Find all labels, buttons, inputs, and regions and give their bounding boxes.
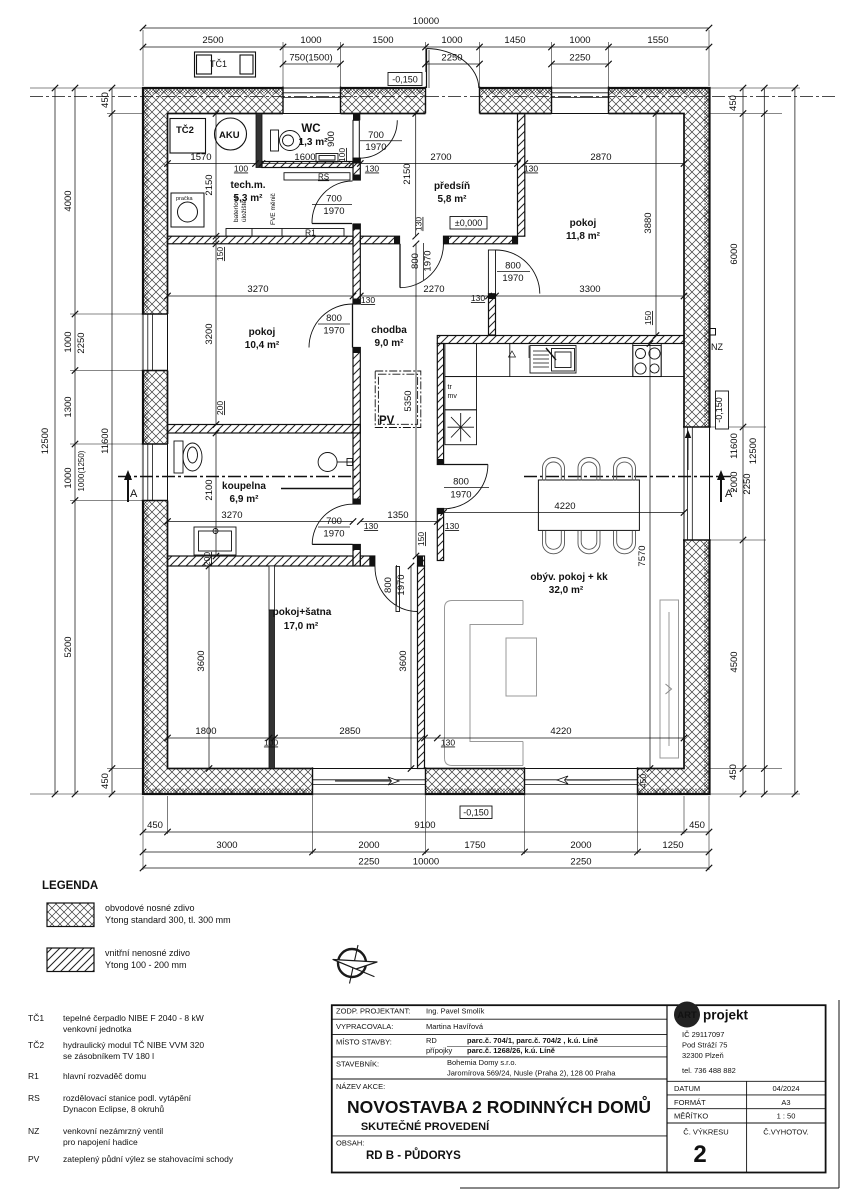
- svg-text:tech.m.: tech.m.: [230, 180, 265, 191]
- svg-text:FORMÁT: FORMÁT: [674, 1098, 706, 1107]
- svg-text:3300: 3300: [579, 284, 600, 295]
- svg-text:MĚŘÍTKO: MĚŘÍTKO: [674, 1112, 708, 1121]
- svg-text:1970: 1970: [423, 250, 434, 271]
- svg-text:RD: RD: [426, 1036, 437, 1045]
- svg-text:1000: 1000: [441, 35, 462, 46]
- svg-text:A3: A3: [781, 1098, 790, 1107]
- svg-text:6000: 6000: [729, 243, 740, 264]
- svg-text:2700: 2700: [430, 152, 451, 163]
- svg-text:11600: 11600: [100, 428, 111, 454]
- svg-text:1970: 1970: [323, 326, 344, 337]
- svg-text:TČ1: TČ1: [28, 1013, 44, 1023]
- svg-text:Bohemia Domy s.r.o.: Bohemia Domy s.r.o.: [447, 1058, 517, 1067]
- svg-text:200: 200: [215, 401, 225, 415]
- svg-text:tr: tr: [448, 384, 453, 391]
- svg-text:130: 130: [445, 521, 459, 531]
- svg-text:3880: 3880: [643, 212, 654, 233]
- svg-text:ZODP. PROJEKTANT:: ZODP. PROJEKTANT:: [336, 1007, 410, 1016]
- svg-text:pro napojení hadice: pro napojení hadice: [63, 1137, 138, 1147]
- svg-text:1450: 1450: [504, 35, 525, 46]
- svg-text:Jaromírova 569/24, Nusle (Prah: Jaromírova 569/24, Nusle (Praha 2), 128 …: [447, 1069, 616, 1078]
- svg-text:4500: 4500: [729, 651, 740, 672]
- svg-text:800: 800: [383, 577, 394, 593]
- svg-text:TČ2: TČ2: [28, 1040, 44, 1050]
- svg-text:pokoj+šatna: pokoj+šatna: [273, 607, 332, 618]
- svg-text:předsíň: předsíň: [434, 181, 470, 192]
- svg-text:hlavní rozvaděč domu: hlavní rozvaděč domu: [63, 1071, 146, 1081]
- svg-text:450: 450: [147, 820, 163, 831]
- svg-text:450: 450: [100, 773, 111, 789]
- svg-text:10000: 10000: [413, 16, 439, 27]
- svg-text:2250: 2250: [441, 53, 462, 64]
- svg-text:100: 100: [234, 164, 248, 174]
- svg-text:1300: 1300: [63, 396, 74, 417]
- svg-text:R1: R1: [305, 228, 316, 238]
- svg-text:AKU: AKU: [219, 130, 240, 141]
- svg-text:2250: 2250: [76, 332, 87, 353]
- svg-text:2000: 2000: [570, 840, 591, 851]
- svg-text:R1: R1: [28, 1071, 39, 1081]
- svg-text:A: A: [130, 488, 138, 500]
- svg-text:NZ: NZ: [28, 1126, 39, 1136]
- svg-text:1600: 1600: [294, 152, 315, 163]
- svg-text:2100: 2100: [204, 479, 215, 500]
- svg-text:3600: 3600: [398, 650, 409, 671]
- svg-text:DATUM: DATUM: [674, 1084, 700, 1093]
- svg-text:1970: 1970: [323, 529, 344, 540]
- svg-text:PV: PV: [379, 415, 395, 427]
- svg-text:pokoj: pokoj: [570, 218, 597, 229]
- svg-text:RS: RS: [318, 172, 329, 181]
- svg-text:ART: ART: [677, 1010, 697, 1021]
- svg-text:2250: 2250: [358, 857, 379, 868]
- svg-text:1000: 1000: [63, 467, 74, 488]
- svg-text:VYPRACOVALA:: VYPRACOVALA:: [336, 1022, 393, 1031]
- svg-text:hydraulický modul TČ NIBE VVM: hydraulický modul TČ NIBE VVM 320: [63, 1040, 204, 1050]
- svg-text:zateplený půdní výlez se staho: zateplený půdní výlez se stahovacími sch…: [63, 1154, 234, 1164]
- svg-text:1350: 1350: [387, 510, 408, 521]
- svg-text:12500: 12500: [748, 438, 759, 464]
- svg-text:IČ 29117097: IČ 29117097: [682, 1030, 724, 1039]
- svg-text:4000: 4000: [63, 190, 74, 211]
- svg-text:OBSAH:: OBSAH:: [336, 1139, 364, 1148]
- svg-text:se zásobníkem TV 180 l: se zásobníkem TV 180 l: [63, 1051, 154, 1061]
- svg-text:11600: 11600: [729, 433, 740, 459]
- svg-text:2250: 2250: [742, 473, 753, 494]
- svg-text:mv: mv: [448, 393, 458, 400]
- svg-text:1970: 1970: [323, 206, 344, 217]
- svg-text:450: 450: [100, 92, 111, 108]
- svg-text:1570: 1570: [190, 152, 211, 163]
- svg-text:Pod Stráží 75: Pod Stráží 75: [682, 1041, 727, 1050]
- svg-text:3200: 3200: [204, 323, 215, 344]
- svg-text:130: 130: [414, 217, 424, 231]
- svg-text:04/2024: 04/2024: [772, 1084, 799, 1093]
- svg-text:900: 900: [326, 131, 337, 147]
- svg-text:MÍSTO STAVBY:: MÍSTO STAVBY:: [336, 1038, 392, 1047]
- svg-text:venkovní jednotka: venkovní jednotka: [63, 1024, 132, 1034]
- svg-text:1970: 1970: [450, 490, 471, 501]
- svg-text:800: 800: [326, 313, 342, 324]
- svg-text:rozdělovací stanice podl. vytá: rozdělovací stanice podl. vytápění: [63, 1093, 192, 1103]
- svg-text:130: 130: [441, 738, 455, 748]
- svg-text:1500: 1500: [372, 35, 393, 46]
- svg-text:Dynacon Eclipse, 8 okruhů: Dynacon Eclipse, 8 okruhů: [63, 1104, 164, 1114]
- svg-text:2250: 2250: [569, 53, 590, 64]
- svg-text:2150: 2150: [204, 174, 215, 195]
- svg-text:3000: 3000: [216, 840, 237, 851]
- svg-text:32300 Plzeň: 32300 Plzeň: [682, 1051, 724, 1060]
- svg-text:17,0 m²: 17,0 m²: [284, 621, 319, 632]
- svg-text:1250: 1250: [662, 840, 683, 851]
- svg-text:venkovní nezámrzný ventil: venkovní nezámrzný ventil: [63, 1126, 163, 1136]
- svg-text:800: 800: [505, 261, 521, 272]
- svg-text:chodba: chodba: [371, 325, 407, 336]
- svg-text:9100: 9100: [414, 820, 435, 831]
- svg-text:2: 2: [693, 1141, 706, 1168]
- svg-text:RD B - PŮDORYS: RD B - PŮDORYS: [366, 1148, 461, 1162]
- svg-text:1,3 m²: 1,3 m²: [299, 137, 329, 148]
- svg-text:NZ: NZ: [711, 342, 723, 352]
- svg-text:parc.č. 1268/26, k.ú. Líně: parc.č. 1268/26, k.ú. Líně: [467, 1046, 555, 1055]
- svg-text:TČ2: TČ2: [176, 124, 194, 136]
- svg-text:130: 130: [471, 293, 485, 303]
- svg-text:1000: 1000: [63, 331, 74, 352]
- svg-text:-0,150: -0,150: [714, 397, 724, 423]
- svg-text:5350: 5350: [403, 390, 414, 411]
- svg-text:1800: 1800: [195, 726, 216, 737]
- svg-text:2000: 2000: [729, 471, 740, 492]
- svg-text:STAVEBNÍK:: STAVEBNÍK:: [336, 1060, 379, 1069]
- svg-text:NOVOSTAVBA 2 RODINNÝCH DOMŮ: NOVOSTAVBA 2 RODINNÝCH DOMŮ: [347, 1095, 651, 1117]
- svg-text:RS: RS: [28, 1093, 40, 1103]
- svg-text:2150: 2150: [402, 163, 413, 184]
- svg-text:vnitřní nenosné zdivo: vnitřní nenosné zdivo: [105, 948, 190, 958]
- svg-text:700: 700: [368, 130, 384, 141]
- svg-text:2850: 2850: [339, 726, 360, 737]
- svg-text:750(1500): 750(1500): [289, 53, 332, 64]
- svg-text:tel. 736 488 882: tel. 736 488 882: [682, 1066, 736, 1075]
- svg-text:150: 150: [416, 532, 426, 546]
- svg-text:10,4 m²: 10,4 m²: [245, 340, 280, 351]
- svg-text:100: 100: [264, 738, 278, 748]
- svg-text:Martina Havířová: Martina Havířová: [426, 1022, 484, 1031]
- svg-text:450: 450: [728, 764, 739, 780]
- svg-text:3270: 3270: [247, 284, 268, 295]
- svg-text:FVE měnič: FVE měnič: [270, 192, 277, 225]
- svg-text:1000: 1000: [300, 35, 321, 46]
- svg-text:150: 150: [215, 247, 225, 261]
- svg-text:pračka: pračka: [176, 196, 193, 202]
- svg-text:1970: 1970: [502, 273, 523, 284]
- svg-text:700: 700: [326, 516, 342, 527]
- svg-text:5,3 m²: 5,3 m²: [234, 193, 264, 204]
- svg-text:-0,150: -0,150: [463, 808, 489, 818]
- svg-text:2500: 2500: [202, 35, 223, 46]
- svg-text:±0,000: ±0,000: [455, 218, 482, 228]
- svg-text:7570: 7570: [637, 545, 648, 566]
- svg-text:12500: 12500: [40, 428, 51, 454]
- svg-text:11,8 m²: 11,8 m²: [566, 231, 601, 242]
- svg-text:Č.VYHOTOV.: Č.VYHOTOV.: [763, 1128, 808, 1137]
- svg-text:koupelna: koupelna: [222, 481, 266, 492]
- svg-text:2870: 2870: [590, 152, 611, 163]
- svg-text:450: 450: [638, 774, 648, 788]
- svg-text:2270: 2270: [423, 284, 444, 295]
- svg-text:4220: 4220: [554, 501, 575, 512]
- svg-text:projekt: projekt: [703, 1008, 749, 1023]
- svg-text:1750: 1750: [464, 840, 485, 851]
- svg-text:PV: PV: [28, 1154, 40, 1164]
- svg-text:100: 100: [337, 148, 347, 162]
- svg-text:130: 130: [365, 164, 379, 174]
- svg-text:1970: 1970: [365, 142, 386, 153]
- svg-text:9,0 m²: 9,0 m²: [375, 338, 405, 349]
- svg-text:450: 450: [728, 95, 739, 111]
- svg-text:5,8 m²: 5,8 m²: [438, 194, 468, 205]
- svg-text:130: 130: [524, 164, 538, 174]
- svg-text:130: 130: [364, 521, 378, 531]
- svg-text:-0,150: -0,150: [392, 75, 418, 85]
- svg-text:WC: WC: [301, 123, 320, 135]
- svg-text:přípojky: přípojky: [426, 1046, 453, 1055]
- svg-text:Ytong 100 - 200 mm: Ytong 100 - 200 mm: [105, 960, 187, 970]
- svg-text:TČ1: TČ1: [210, 59, 227, 69]
- svg-text:Č. VÝKRESU: Č. VÝKRESU: [683, 1128, 728, 1137]
- svg-text:parc.č. 704/1, parc.č. 704/2 ,: parc.č. 704/1, parc.č. 704/2 , k.ú. Líně: [467, 1036, 598, 1045]
- svg-text:pokoj: pokoj: [249, 327, 276, 338]
- svg-text:SKUTEČNÉ PROVEDENÍ: SKUTEČNÉ PROVEDENÍ: [361, 1120, 490, 1133]
- svg-text:4220: 4220: [550, 726, 571, 737]
- svg-text:1970: 1970: [396, 574, 407, 595]
- svg-text:800: 800: [453, 477, 469, 488]
- svg-text:6,9 m²: 6,9 m²: [230, 494, 260, 505]
- svg-text:1550: 1550: [647, 35, 668, 46]
- svg-text:3270: 3270: [221, 510, 242, 521]
- svg-text:150: 150: [643, 311, 653, 325]
- svg-text:obýv. pokoj + kk: obýv. pokoj + kk: [530, 572, 608, 583]
- svg-text:1 : 50: 1 : 50: [777, 1112, 796, 1121]
- svg-text:LEGENDA: LEGENDA: [42, 880, 98, 892]
- svg-text:700: 700: [326, 194, 342, 205]
- svg-text:32,0 m²: 32,0 m²: [549, 585, 584, 596]
- svg-text:800: 800: [410, 253, 421, 269]
- svg-text:1000: 1000: [569, 35, 590, 46]
- svg-text:Ytong standard 300, tl. 300 mm: Ytong standard 300, tl. 300 mm: [105, 915, 231, 925]
- svg-text:tepelné čerpadlo NIBE F 2040 -: tepelné čerpadlo NIBE F 2040 - 8 kW: [63, 1013, 204, 1023]
- svg-text:Ing. Pavel Smolík: Ing. Pavel Smolík: [426, 1007, 485, 1016]
- svg-text:2250: 2250: [570, 857, 591, 868]
- svg-text:5200: 5200: [63, 636, 74, 657]
- svg-text:NÁZEV AKCE:: NÁZEV AKCE:: [336, 1082, 385, 1091]
- svg-text:130: 130: [361, 295, 375, 305]
- svg-text:450: 450: [689, 820, 705, 831]
- svg-text:1000(1250): 1000(1250): [77, 450, 86, 491]
- svg-text:obvodové nosné zdivo: obvodové nosné zdivo: [105, 903, 195, 913]
- svg-text:3600: 3600: [196, 650, 207, 671]
- svg-text:2000: 2000: [358, 840, 379, 851]
- svg-text:10000: 10000: [413, 857, 439, 868]
